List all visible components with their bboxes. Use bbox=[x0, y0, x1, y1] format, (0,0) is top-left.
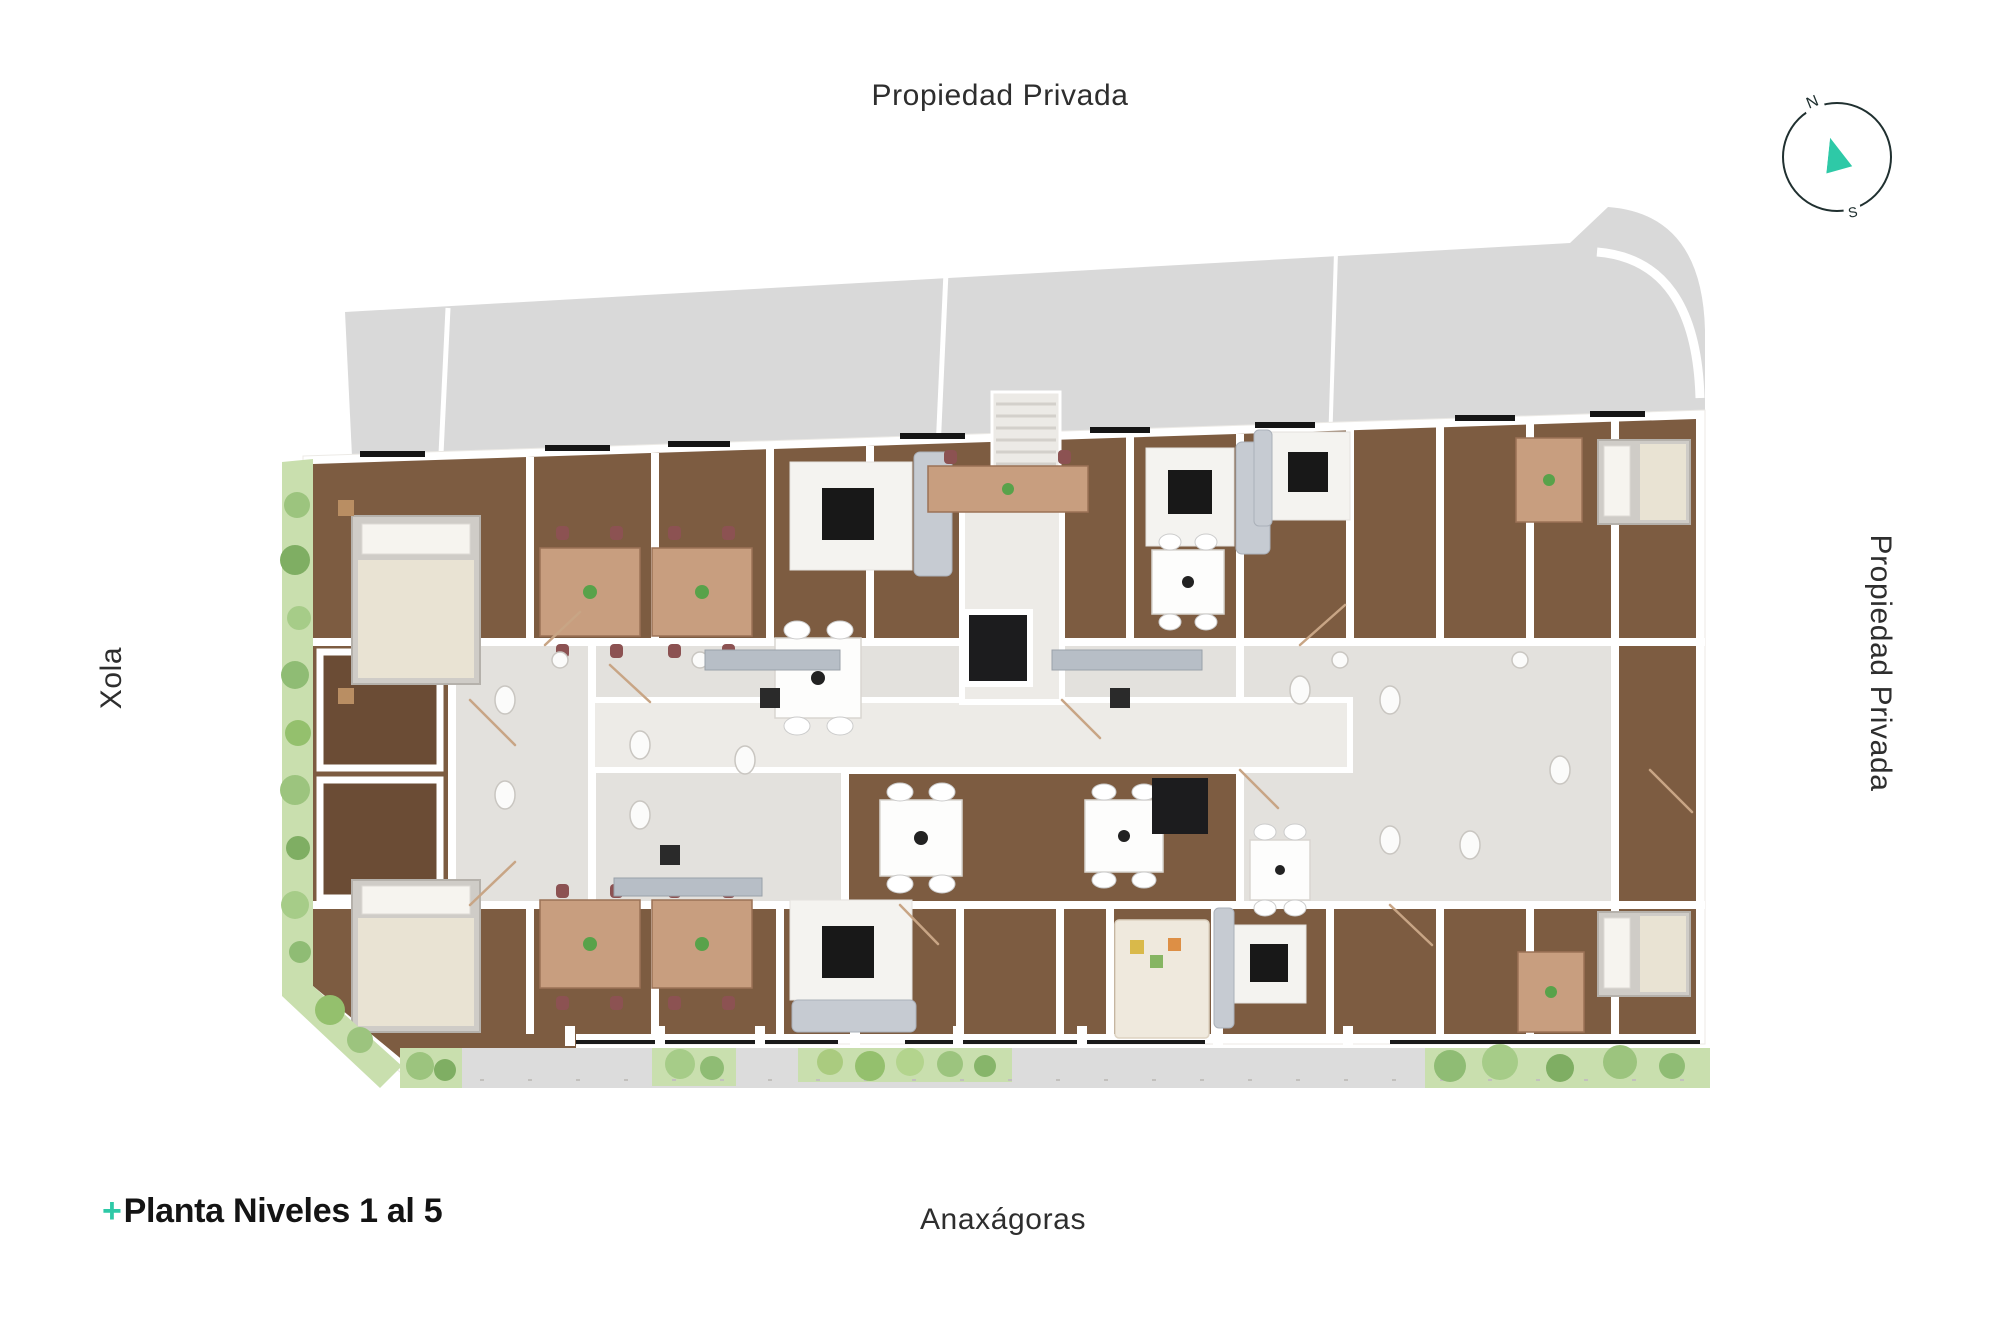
toilet bbox=[1380, 686, 1400, 714]
compass-needle-icon bbox=[1826, 138, 1856, 179]
tree bbox=[855, 1051, 885, 1081]
chair bbox=[556, 884, 569, 898]
plus-icon: + bbox=[102, 1192, 122, 1230]
coffee-table bbox=[822, 926, 874, 978]
plan-title-text: Planta Niveles 1 al 5 bbox=[124, 1192, 443, 1230]
chair bbox=[944, 450, 957, 464]
coffee-table bbox=[1168, 470, 1212, 514]
tree bbox=[281, 891, 309, 919]
toilet bbox=[630, 801, 650, 829]
desk-plant bbox=[583, 937, 597, 951]
tree bbox=[817, 1049, 843, 1075]
chair bbox=[668, 996, 681, 1010]
dining-chair bbox=[1159, 614, 1181, 630]
bed-blanket bbox=[358, 918, 474, 1026]
sink bbox=[1512, 652, 1528, 668]
dining-centerpiece bbox=[914, 831, 928, 845]
elevator bbox=[966, 612, 1030, 684]
tree bbox=[285, 720, 311, 746]
chair bbox=[668, 526, 681, 540]
tree bbox=[1482, 1044, 1518, 1080]
dining-chair bbox=[1195, 614, 1217, 630]
toilet bbox=[1380, 826, 1400, 854]
tree bbox=[700, 1056, 724, 1080]
desk-plant bbox=[1545, 986, 1557, 998]
tree bbox=[287, 606, 311, 630]
dining-chair bbox=[784, 717, 810, 735]
plan-title: +Planta Niveles 1 al 5 bbox=[102, 1192, 442, 1231]
dining-centerpiece bbox=[811, 671, 825, 685]
tree bbox=[280, 775, 310, 805]
dining-chair bbox=[1159, 534, 1181, 550]
toilet bbox=[630, 731, 650, 759]
sofa-pillow bbox=[1150, 955, 1163, 968]
dining-chair bbox=[1092, 872, 1116, 888]
dining-centerpiece bbox=[1182, 576, 1194, 588]
tree bbox=[289, 941, 311, 963]
street-label-right: Propiedad Privada bbox=[1863, 534, 1897, 791]
sofa-sectional bbox=[1115, 920, 1209, 1038]
tree bbox=[1546, 1054, 1574, 1082]
sofa bbox=[1214, 908, 1234, 1028]
desk-plant bbox=[695, 585, 709, 599]
dining-centerpiece bbox=[1118, 830, 1130, 842]
tree bbox=[896, 1048, 924, 1076]
toilet bbox=[735, 746, 755, 774]
chair bbox=[610, 996, 623, 1010]
dining-chair bbox=[887, 875, 913, 893]
stove bbox=[660, 845, 680, 865]
toilet bbox=[1290, 676, 1310, 704]
tree bbox=[286, 836, 310, 860]
bed-pillow bbox=[1604, 446, 1630, 516]
street-label-top: Propiedad Privada bbox=[871, 79, 1128, 113]
coffee-table bbox=[822, 488, 874, 540]
bed-pillow bbox=[1604, 918, 1630, 988]
dining-chair bbox=[1195, 534, 1217, 550]
bed-blanket bbox=[358, 560, 474, 678]
dining-chair bbox=[1284, 900, 1306, 916]
chair bbox=[556, 526, 569, 540]
dining-chair bbox=[1132, 872, 1156, 888]
kitchen-counter bbox=[614, 878, 762, 896]
floor-plan-poster: Propiedad Privada Xola Propiedad Privada… bbox=[0, 0, 2000, 1335]
dining-chair bbox=[1092, 784, 1116, 800]
chair bbox=[610, 644, 623, 658]
tree bbox=[406, 1052, 434, 1080]
bed-pillow bbox=[362, 524, 470, 554]
sofa-pillow bbox=[1168, 938, 1181, 951]
dining-chair bbox=[929, 783, 955, 801]
nightstand bbox=[338, 500, 354, 516]
tree bbox=[937, 1051, 963, 1077]
tree bbox=[315, 995, 345, 1025]
chair bbox=[556, 996, 569, 1010]
corridor bbox=[592, 700, 1350, 770]
dining-chair bbox=[827, 717, 853, 735]
coffee-table bbox=[1288, 452, 1328, 492]
tree bbox=[280, 545, 310, 575]
sofa bbox=[792, 1000, 916, 1032]
dining-centerpiece bbox=[1275, 865, 1285, 875]
dining-chair bbox=[887, 783, 913, 801]
desk-plant bbox=[583, 585, 597, 599]
tree bbox=[434, 1059, 456, 1081]
toilet bbox=[1550, 756, 1570, 784]
tree bbox=[284, 492, 310, 518]
tree bbox=[1603, 1045, 1637, 1079]
dining-chair bbox=[1254, 824, 1276, 840]
dining-chair bbox=[827, 621, 853, 639]
desk-plant bbox=[1543, 474, 1555, 486]
sink bbox=[552, 652, 568, 668]
street-label-anaxagoras: Anaxágoras bbox=[920, 1203, 1086, 1237]
sofa-pillow bbox=[1130, 940, 1144, 954]
tree bbox=[1434, 1050, 1466, 1082]
stove bbox=[1110, 688, 1130, 708]
kitchen-counter bbox=[1052, 650, 1202, 670]
dining-chair bbox=[1254, 900, 1276, 916]
dining-chair bbox=[1284, 824, 1306, 840]
bed-blanket bbox=[1640, 916, 1686, 992]
dining-chair bbox=[929, 875, 955, 893]
coffee-table bbox=[1250, 944, 1288, 982]
sofa bbox=[1254, 430, 1272, 526]
chair bbox=[610, 526, 623, 540]
floor-plan bbox=[0, 0, 2000, 1335]
kitchen-counter bbox=[705, 650, 840, 670]
street-label-xola: Xola bbox=[95, 647, 129, 709]
tree bbox=[281, 661, 309, 689]
compass-south-label: S bbox=[1843, 203, 1863, 222]
chair bbox=[722, 996, 735, 1010]
dining-chair bbox=[784, 621, 810, 639]
chair bbox=[668, 644, 681, 658]
compass: N S bbox=[1782, 102, 1892, 212]
desk-plant bbox=[695, 937, 709, 951]
toilet bbox=[495, 686, 515, 714]
sink bbox=[1332, 652, 1348, 668]
toilet bbox=[1460, 831, 1480, 859]
tree bbox=[974, 1055, 996, 1077]
nightstand bbox=[338, 688, 354, 704]
stove bbox=[760, 688, 780, 708]
chair bbox=[1058, 450, 1071, 464]
tree bbox=[347, 1027, 373, 1053]
tree bbox=[1659, 1053, 1685, 1079]
desk-plant bbox=[1002, 483, 1014, 495]
chair bbox=[722, 526, 735, 540]
bed-blanket bbox=[1640, 444, 1686, 520]
tv-console bbox=[1152, 778, 1208, 834]
bed-pillow bbox=[362, 886, 470, 914]
toilet bbox=[495, 781, 515, 809]
tree bbox=[665, 1049, 695, 1079]
